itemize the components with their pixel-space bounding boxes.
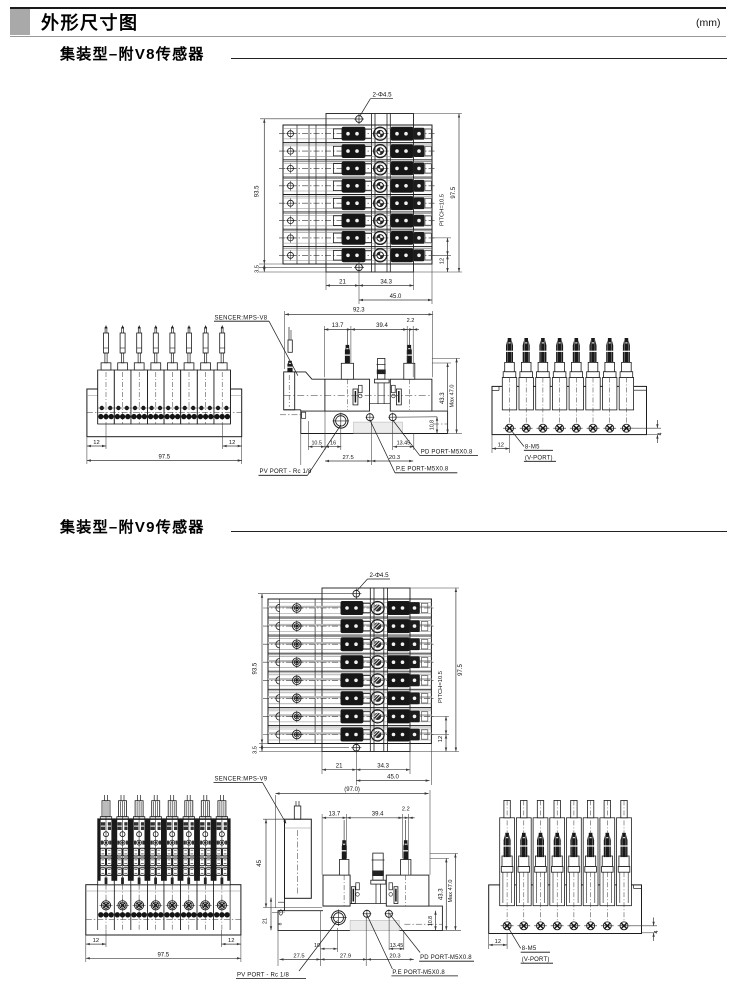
svg-text:8-M5: 8-M5 xyxy=(525,444,540,450)
svg-text:12: 12 xyxy=(229,440,235,446)
svg-text:12: 12 xyxy=(93,440,99,446)
svg-text:(V-PORT): (V-PORT) xyxy=(525,455,553,461)
svg-text:93.5: 93.5 xyxy=(255,185,261,197)
svg-text:P.E PORT-M5X0.8: P.E PORT-M5X0.8 xyxy=(396,467,449,473)
svg-text:12: 12 xyxy=(438,736,444,742)
svg-text:92.3: 92.3 xyxy=(353,308,365,314)
svg-text:43.3: 43.3 xyxy=(440,392,446,404)
svg-text:12: 12 xyxy=(495,939,501,945)
svg-text:2-Φ4.5: 2-Φ4.5 xyxy=(369,572,389,579)
svg-text:(97.0): (97.0) xyxy=(344,787,360,793)
svg-text:2.2: 2.2 xyxy=(402,807,410,813)
svg-text:PD PORT-M5X0.8: PD PORT-M5X0.8 xyxy=(421,449,473,455)
svg-text:43.3: 43.3 xyxy=(439,888,445,900)
svg-text:10.5: 10.5 xyxy=(311,441,322,447)
svg-text:45.0: 45.0 xyxy=(387,775,399,781)
svg-text:(V-PORT): (V-PORT) xyxy=(522,957,550,963)
svg-text:13.7: 13.7 xyxy=(329,811,341,817)
svg-text:27.9: 27.9 xyxy=(340,953,351,959)
svg-text:21: 21 xyxy=(263,918,269,924)
svg-text:P.E PORT-M5X0.8: P.E PORT-M5X0.8 xyxy=(392,970,445,976)
svg-text:Max 47.0: Max 47.0 xyxy=(448,879,454,902)
svg-text:PITCH=10.5: PITCH=10.5 xyxy=(440,194,446,226)
svg-text:Max 47.0: Max 47.0 xyxy=(449,384,455,407)
svg-text:2.2: 2.2 xyxy=(407,318,415,324)
svg-text:13.7: 13.7 xyxy=(332,323,344,329)
svg-text:4: 4 xyxy=(654,931,660,934)
svg-text:97.5: 97.5 xyxy=(158,455,170,461)
svg-text:4: 4 xyxy=(658,433,664,436)
svg-text:97.5: 97.5 xyxy=(458,664,464,676)
svg-text:SENCER:MPS-V9: SENCER:MPS-V9 xyxy=(215,777,268,783)
svg-text:13.45: 13.45 xyxy=(390,943,404,949)
svg-text:12: 12 xyxy=(440,258,446,264)
svg-text:12: 12 xyxy=(93,938,99,944)
svg-text:8-M5: 8-M5 xyxy=(522,946,537,952)
svg-text:39.4: 39.4 xyxy=(376,323,388,329)
svg-text:PD PORT-M5X0.8: PD PORT-M5X0.8 xyxy=(420,955,472,961)
svg-text:PV PORT - Rc 1/8: PV PORT - Rc 1/8 xyxy=(237,973,289,979)
svg-text:27.5: 27.5 xyxy=(342,455,353,461)
svg-text:34.3: 34.3 xyxy=(380,280,392,286)
svg-text:12: 12 xyxy=(228,938,234,944)
svg-text:34.3: 34.3 xyxy=(377,764,389,770)
svg-text:SENCER:MPS-V8: SENCER:MPS-V8 xyxy=(215,315,268,321)
svg-text:27.5: 27.5 xyxy=(293,953,304,959)
svg-text:93.5: 93.5 xyxy=(253,662,259,674)
svg-text:39.4: 39.4 xyxy=(372,811,384,817)
svg-text:13.45: 13.45 xyxy=(397,441,411,447)
svg-text:20.3: 20.3 xyxy=(389,455,400,461)
svg-text:16: 16 xyxy=(330,441,336,447)
svg-text:PITCH=10.5: PITCH=10.5 xyxy=(438,671,444,703)
svg-text:10.8: 10.8 xyxy=(430,420,436,430)
svg-text:3.5: 3.5 xyxy=(253,746,259,754)
svg-text:21: 21 xyxy=(339,280,346,286)
svg-text:PV PORT - Rc 1/8: PV PORT - Rc 1/8 xyxy=(260,469,312,475)
svg-text:8: 8 xyxy=(278,922,284,925)
svg-text:20.3: 20.3 xyxy=(389,953,400,959)
svg-text:2-Φ4.5: 2-Φ4.5 xyxy=(372,92,392,99)
svg-text:12: 12 xyxy=(498,443,504,449)
svg-text:45: 45 xyxy=(257,859,263,866)
svg-text:97.5: 97.5 xyxy=(157,952,169,958)
svg-text:10.8: 10.8 xyxy=(428,916,434,926)
svg-text:45.0: 45.0 xyxy=(390,294,402,300)
svg-text:21: 21 xyxy=(336,764,343,770)
svg-text:97.5: 97.5 xyxy=(451,186,457,198)
svg-text:3.5: 3.5 xyxy=(255,265,261,273)
